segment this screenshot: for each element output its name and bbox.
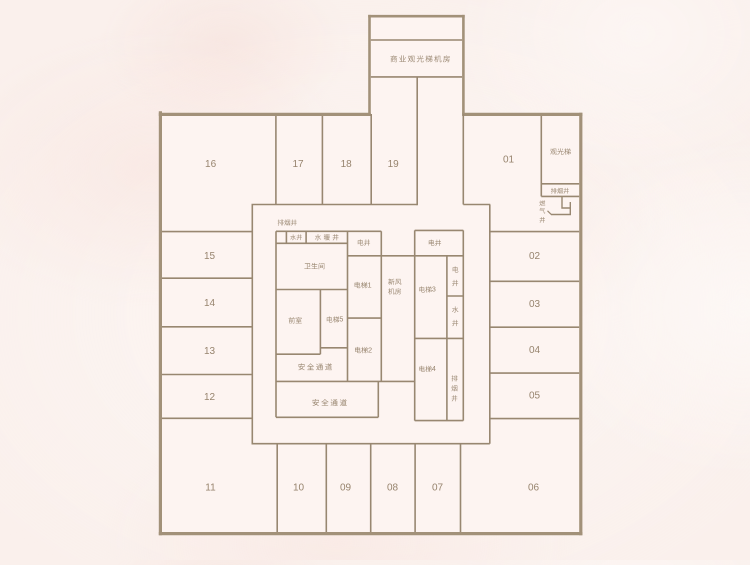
svg-text:16: 16 — [205, 159, 217, 170]
svg-text:15: 15 — [204, 251, 216, 262]
svg-text:01: 01 — [503, 155, 515, 166]
svg-text:5: 5 — [339, 316, 343, 324]
svg-text:08: 08 — [387, 483, 399, 494]
svg-text:10: 10 — [293, 483, 305, 494]
svg-text:2: 2 — [368, 346, 372, 355]
svg-text:18: 18 — [341, 159, 353, 170]
svg-text:13: 13 — [204, 346, 216, 357]
svg-text:17: 17 — [292, 159, 304, 170]
svg-text:3: 3 — [432, 286, 436, 294]
svg-text:03: 03 — [529, 299, 541, 310]
svg-text:14: 14 — [204, 298, 216, 309]
svg-text:19: 19 — [388, 159, 400, 170]
svg-text:06: 06 — [528, 483, 540, 494]
svg-text:11: 11 — [205, 483, 216, 494]
svg-text:1: 1 — [368, 281, 372, 290]
svg-text:4: 4 — [432, 365, 436, 373]
svg-text:12: 12 — [204, 392, 216, 403]
svg-text:05: 05 — [529, 391, 541, 402]
svg-text:09: 09 — [340, 483, 352, 494]
svg-text:07: 07 — [432, 483, 444, 494]
svg-text:04: 04 — [529, 345, 541, 356]
svg-text:02: 02 — [529, 251, 541, 262]
